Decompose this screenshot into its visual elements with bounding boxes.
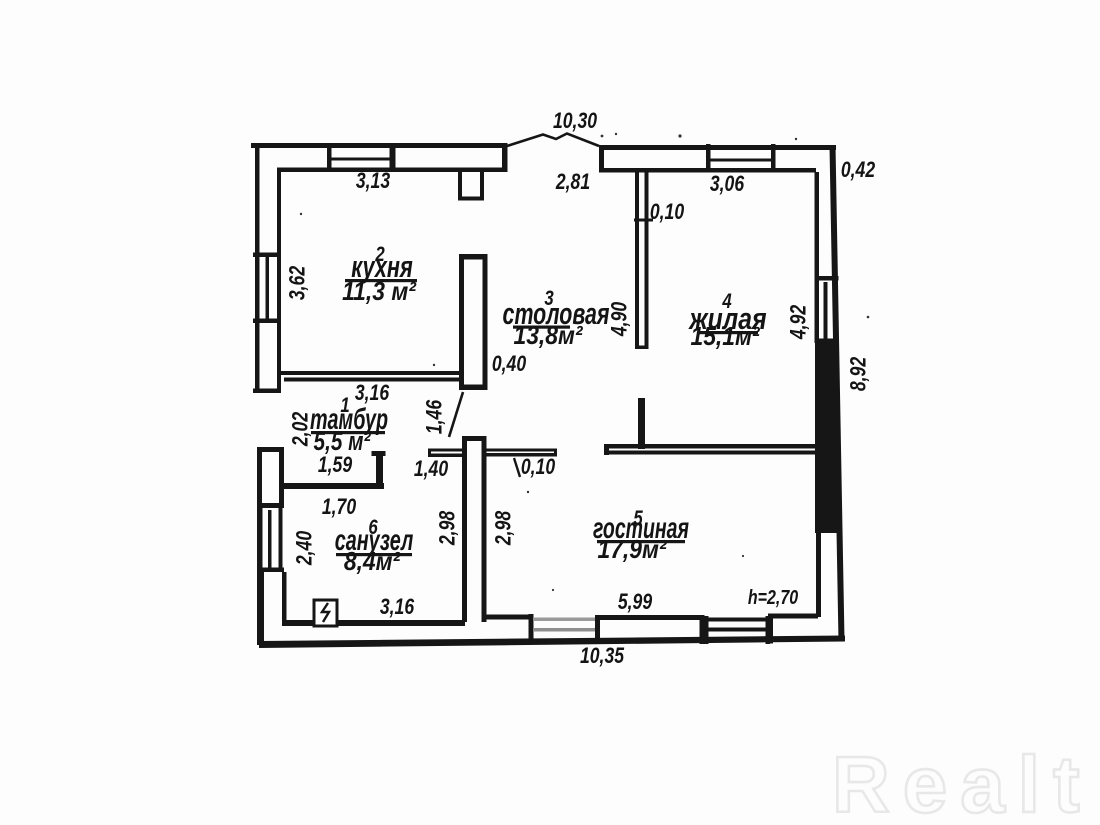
- svg-text:5,99: 5,99: [618, 590, 652, 614]
- svg-text:3,62: 3,62: [286, 266, 310, 300]
- svg-text:11,3 м²: 11,3 м²: [342, 278, 416, 307]
- svg-text:13,8м²: 13,8м²: [513, 322, 583, 351]
- svg-text:4,92: 4,92: [787, 305, 811, 340]
- svg-text:Realt: Realt: [832, 740, 1093, 825]
- svg-text:2,40: 2,40: [293, 531, 317, 566]
- svg-text:2,98: 2,98: [492, 510, 516, 546]
- svg-text:8,92: 8,92: [847, 357, 871, 391]
- svg-text:3,06: 3,06: [710, 172, 745, 196]
- svg-text:3,16: 3,16: [355, 381, 390, 405]
- svg-text:h=2,70: h=2,70: [748, 586, 798, 608]
- svg-text:15,1м²: 15,1м²: [690, 323, 760, 352]
- svg-text:2,81: 2,81: [555, 170, 590, 194]
- svg-text:1,46: 1,46: [423, 399, 447, 434]
- svg-text:5,5 м²: 5,5 м²: [314, 427, 372, 456]
- svg-text:3,13: 3,13: [356, 169, 390, 193]
- svg-text:2,98: 2,98: [436, 510, 460, 546]
- svg-text:4,90: 4,90: [608, 302, 632, 337]
- svg-text:1,59: 1,59: [318, 453, 352, 477]
- svg-text:0,40: 0,40: [492, 352, 526, 376]
- svg-text:0,10: 0,10: [521, 455, 555, 479]
- svg-text:0,10: 0,10: [650, 200, 684, 224]
- svg-text:10,35: 10,35: [580, 644, 625, 668]
- svg-text:0,42: 0,42: [841, 158, 875, 182]
- svg-text:10,30: 10,30: [553, 109, 597, 133]
- svg-text:1,70: 1,70: [322, 495, 356, 519]
- svg-text:3,16: 3,16: [380, 595, 415, 619]
- svg-text:1,40: 1,40: [414, 457, 448, 481]
- svg-text:8,4м²: 8,4м²: [344, 548, 401, 577]
- svg-text:17,9м²: 17,9м²: [597, 536, 667, 565]
